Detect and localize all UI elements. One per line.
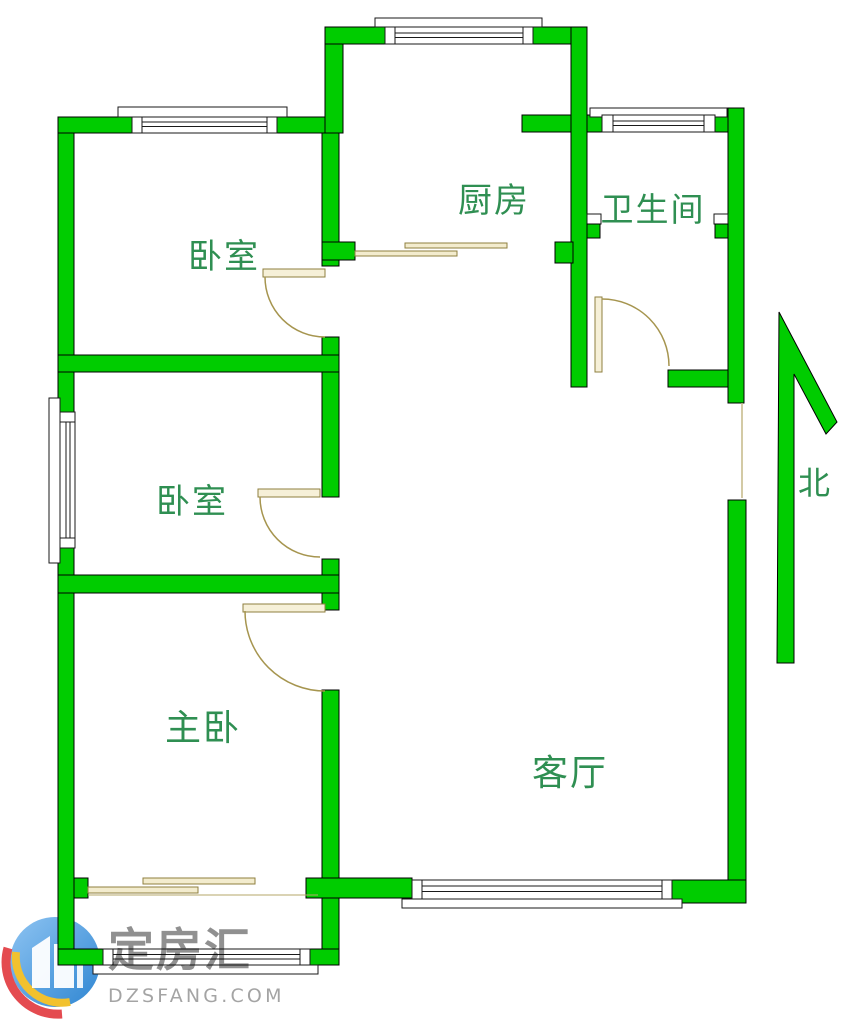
window-sill	[118, 107, 287, 117]
window-kitchen-top	[375, 18, 542, 44]
window-frame	[602, 115, 715, 132]
window-sill	[49, 398, 60, 563]
window-livingroom-bottom	[402, 880, 682, 908]
watermark-domain-text: DZSFANG.COM	[108, 985, 285, 1007]
wall-balcony-left-stub	[74, 878, 88, 898]
wall-endcap-right	[714, 214, 728, 224]
wall-livingroom-bottom-left	[306, 878, 412, 898]
wall-livingroom-bottom-corner	[672, 880, 746, 903]
wall-master-bottom-left	[58, 949, 103, 965]
wall-facade-stub	[522, 115, 571, 132]
floorplan-image: 北 卧室 卧室 主卧 厨房 卫生间 客厅 定房汇 DZSFANG.COM	[0, 0, 858, 1024]
wall-endcap-left	[587, 214, 601, 224]
door-leaf	[243, 604, 325, 612]
window-frame	[132, 117, 277, 133]
north-label: 北	[798, 464, 830, 502]
room-label-living-room: 客厅	[532, 753, 608, 794]
wall-bath-top-right	[715, 115, 728, 132]
sliding-leaf	[143, 878, 255, 884]
door-leaf	[258, 489, 320, 497]
window-bedroom2-left	[49, 398, 75, 563]
wall-bedroom-divider-2	[58, 575, 339, 593]
wall-kitchen-slide-stub	[555, 242, 573, 263]
wall-master-bottom-right	[310, 949, 339, 965]
wall-bath-right	[728, 108, 744, 403]
wall-bath-top-left	[587, 115, 602, 132]
sliding-door-master-balcony	[88, 878, 318, 895]
sliding-leaf	[405, 243, 507, 248]
room-label-bathroom: 卫生间	[601, 190, 706, 229]
wall-bedroom1-top-left	[58, 117, 132, 133]
window-frame	[385, 27, 533, 44]
sliding-leaf	[88, 887, 198, 893]
wall-hall-vertical-5	[322, 690, 339, 965]
room-label-bedroom1: 卧室	[188, 237, 260, 277]
room-label-master-bedroom: 主卧	[165, 708, 241, 749]
door-bedroom1	[263, 269, 325, 337]
window-bedroom1-top	[118, 107, 287, 133]
watermark-logo	[6, 917, 100, 1014]
wall-kitchen-top-left	[325, 27, 385, 44]
north-arrow: 北	[777, 312, 837, 663]
wall-stub-bath-right	[715, 224, 728, 238]
wall-left-lower	[58, 548, 74, 965]
window-frame	[60, 412, 75, 548]
watermark-brand-text: 定房汇	[108, 923, 252, 977]
sliding-door-kitchen	[355, 243, 507, 256]
window-frame	[412, 880, 672, 899]
door-swing-arc	[260, 497, 320, 557]
room-label-kitchen: 厨房	[458, 181, 530, 221]
room-label-bedroom2: 卧室	[156, 482, 228, 522]
wall-stub-bath-left	[587, 224, 600, 238]
wall-bedroom-divider-1	[58, 355, 339, 372]
window-sill	[375, 18, 542, 27]
wall-right-lower	[728, 500, 746, 903]
window-bathroom-top	[590, 108, 727, 132]
door-leaf	[263, 269, 325, 277]
wall-bedroom1-door-stub	[322, 242, 355, 260]
door-bathroom	[595, 297, 669, 372]
door-master-bedroom	[243, 604, 325, 691]
wall-hall-vertical-3	[322, 372, 339, 497]
door-swing-arc	[602, 299, 669, 366]
window-sill	[402, 899, 682, 908]
door-swing-arc	[245, 611, 325, 691]
wall-bath-bottom	[668, 370, 728, 387]
door-leaf	[595, 297, 602, 372]
wall-kitchen-bath	[571, 27, 587, 387]
door-bedroom2	[258, 489, 320, 557]
sliding-leaf	[355, 251, 457, 256]
door-swing-arc	[265, 277, 325, 337]
floorplan-svg: 北 卧室 卧室 主卧 厨房 卫生间 客厅 定房汇 DZSFANG.COM	[0, 0, 858, 1024]
